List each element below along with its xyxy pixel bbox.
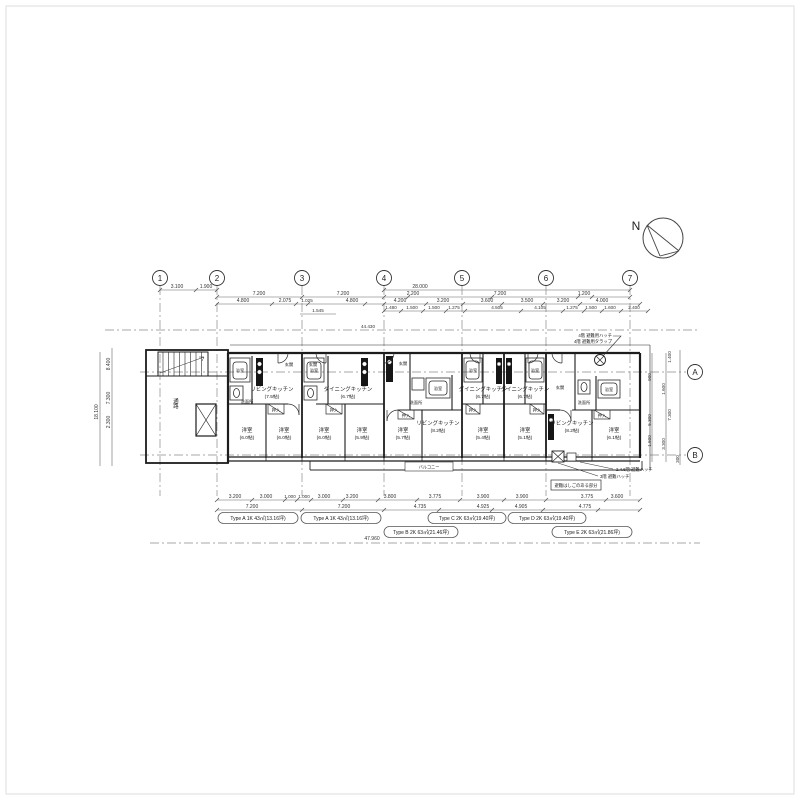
corridor-label: 通路: [172, 397, 179, 410]
room-name: 洋室: [242, 426, 253, 434]
closet-label: 押入: [330, 407, 339, 414]
type-label-a2: Type A 1K 43㎡(13.16坪): [313, 515, 369, 522]
grid-bubble-5: 5: [460, 274, 465, 283]
dim-label: 1.000: [284, 494, 296, 499]
dim-label: 1.600: [604, 305, 616, 310]
room-name: リビングキッチン: [416, 419, 459, 427]
note-hatch-top-1: 4階 避難用ハッチ: [578, 332, 612, 339]
grid-bubble-3: 3: [300, 274, 305, 283]
stair-annex: 通路: [146, 350, 228, 463]
dim-label: 3.000: [318, 494, 331, 500]
grid-bubble-B: B: [692, 451, 697, 460]
dim-label: 2.200: [407, 291, 420, 297]
dim-label: 4.800: [346, 298, 359, 304]
grid-bubble-4: 4: [382, 274, 387, 283]
dim-label: 3.775: [429, 494, 442, 500]
room-name: 洋室: [398, 426, 409, 434]
closets: [268, 404, 610, 419]
dim-label: 3.900: [477, 494, 490, 500]
floor-plan-svg: N 1 2 3 4 5 6 7 A B: [0, 0, 800, 800]
dim-label: 1.275: [448, 305, 460, 310]
dim-label: 3.200: [229, 494, 242, 500]
dim-label: 4.800: [237, 298, 250, 304]
dim-label: 7.300: [106, 392, 112, 405]
bath-label: 浴室: [469, 367, 477, 374]
room-size: (5.1帖): [518, 434, 533, 441]
dim-label: 3.200: [346, 494, 359, 500]
note-hatch-b2: 3階 避難ハッチ: [600, 473, 629, 480]
room-name: 洋室: [319, 426, 330, 434]
level-label: 44.430: [361, 324, 375, 329]
staircase: [158, 352, 208, 376]
dim-label: 28.000: [412, 284, 428, 290]
dim-label: 3.300: [661, 438, 666, 450]
dimensions-right: 1.400 900 1.600 5.300 7.300 1.500 3.300 …: [647, 350, 680, 465]
north-label: N: [632, 219, 641, 233]
dim-label: 1.000: [298, 494, 310, 499]
sheet-border: [6, 6, 794, 794]
room-name: ダイニングキッチン: [324, 385, 373, 393]
entrance-label: 玄関: [399, 360, 407, 367]
dim-label: 3.800: [384, 494, 397, 500]
closet-label: 押入: [469, 407, 478, 414]
dimensions-top: 3.100 1.900 28.000 7.200 7.200 2.200 7.2…: [105, 284, 700, 330]
type-capsules: Type A 1K 43㎡(13.16坪) Type A 1K 43㎡(13.1…: [218, 513, 632, 538]
type-label-c: Type C 2K 63㎡(19.40坪): [439, 515, 495, 522]
washroom-label: 洗面所: [241, 398, 254, 405]
dim-label: 1.275: [566, 305, 578, 310]
drawing-sheet: N 1 2 3 4 5 6 7 A B: [0, 0, 800, 800]
entrance-label: 玄関: [309, 361, 317, 368]
dim-label: 3.000: [260, 494, 273, 500]
dim-label: 1.900: [200, 284, 213, 290]
dim-label: 4.905: [515, 504, 528, 510]
dim-label: 7.200: [337, 291, 350, 297]
dim-label: 7.200: [338, 504, 351, 510]
dim-label: 4.200: [394, 298, 407, 304]
dim-label: 1.500: [406, 305, 418, 310]
dim-label: 3.200: [557, 298, 570, 304]
dim-label: 2.300: [106, 416, 112, 429]
dim-label: 1.200: [578, 291, 591, 297]
dimensions-left: 8.400 7.300 2.300 18.100: [94, 348, 112, 466]
washroom-label: 洗面所: [578, 399, 591, 406]
room-size: (6.0帖): [317, 434, 332, 441]
dim-label: 1.400: [667, 351, 672, 363]
grid-bubble-6: 6: [544, 274, 549, 283]
dim-label: 4.505: [491, 305, 503, 310]
room-size: (7.5帖): [265, 393, 280, 400]
north-compass: N: [632, 218, 683, 258]
room-size: (6.0帖): [277, 434, 292, 441]
dim-label: 7.200: [494, 291, 507, 297]
dim-label: 1.500: [647, 435, 652, 447]
closet-label: 押入: [598, 412, 607, 419]
dim-label: 1.500: [585, 305, 597, 310]
grid-bubble-1: 1: [158, 274, 163, 283]
dim-label: 8.400: [106, 358, 112, 371]
dim-label: 7.200: [253, 291, 266, 297]
dim-label: 3.500: [521, 298, 534, 304]
dim-label: 1.500: [428, 305, 440, 310]
room-size: (6.1帖): [607, 434, 622, 441]
note-hatch-top-2: 4階 避難用タラップ: [574, 338, 613, 345]
room-size: (6.0帖): [240, 434, 255, 441]
closet-label: 押入: [402, 412, 411, 419]
dim-label: 4.735: [414, 504, 427, 510]
room-name: リビングキッチン: [250, 385, 293, 393]
dim-label: 900: [647, 373, 652, 381]
dim-label: 3.600: [611, 494, 624, 500]
entrance-label: 玄関: [285, 361, 293, 368]
room-name: 洋室: [279, 426, 290, 434]
grid-rows: A B: [140, 365, 703, 463]
room-size: (8.2帖): [565, 427, 580, 434]
room-size: (6.7帖): [476, 393, 491, 400]
dim-label: 300: [675, 455, 680, 463]
dim-label: 2.075: [279, 298, 292, 304]
room-size: (5.4帖): [476, 434, 491, 441]
dim-label: 1.600: [661, 383, 666, 395]
grid-bubble-A: A: [692, 368, 698, 377]
dim-label: 1.480: [385, 305, 397, 310]
room-size: (6.7帖): [341, 393, 356, 400]
balcony-label: バルコニー: [419, 464, 440, 469]
type-label-a1: Type A 1K 43㎡(13.16坪): [230, 515, 286, 522]
type-label-b: Type B 2K 63㎡(21.46坪): [393, 529, 449, 536]
room-name: 洋室: [609, 426, 620, 434]
entrance-label: 玄関: [556, 384, 564, 391]
dim-label: 7.200: [246, 504, 259, 510]
room-name: 洋室: [478, 426, 489, 434]
dim-label: 18.100: [94, 404, 100, 420]
dim-label: 3.200: [437, 298, 450, 304]
closet-label: 押入: [533, 407, 542, 414]
room-name: リビングキッチン: [550, 419, 593, 427]
room-name: 洋室: [520, 426, 531, 434]
total-width-label: 47.960: [364, 536, 380, 542]
grid-bubble-7: 7: [628, 274, 633, 283]
room-name: 洋室: [357, 426, 368, 434]
type-label-e: Type E 2K 63㎡(21.86坪): [564, 529, 620, 536]
dim-label: 2.400: [628, 305, 640, 310]
interior-walls: [228, 353, 640, 458]
bath-label: 浴室: [310, 367, 318, 374]
dim-label: 4.925: [477, 504, 490, 510]
escape-hatches: [552, 355, 606, 463]
room-size: (5.9帖): [355, 434, 370, 441]
dim-label: 3.100: [171, 284, 184, 290]
note-hatch-box: 避難はしごのある部分: [555, 482, 599, 489]
dim-label: 4.000: [596, 298, 609, 304]
dim-label: 7.300: [667, 409, 672, 421]
bath-label: 浴室: [434, 385, 442, 392]
room-size: (6.7帖): [518, 393, 533, 400]
note-hatch-b1: 2.4.6階 避難ハッチ: [616, 466, 653, 473]
dim-label: 5.300: [647, 414, 652, 426]
bath-label: 浴室: [605, 386, 613, 393]
dim-label: 3.900: [516, 494, 529, 500]
closet-label: 押入: [272, 407, 281, 414]
room-size: (8.2帖): [431, 427, 446, 434]
dim-label: 1.025: [301, 298, 313, 303]
bath-label: 浴室: [531, 367, 539, 374]
room-size: (5.7帖): [396, 434, 411, 441]
dim-label: 3.775: [581, 494, 594, 500]
room-name: ダイニングキッチン: [501, 385, 550, 393]
dim-label: 4.105: [534, 305, 546, 310]
type-label-d: Type D 2K 63㎡(19.40坪): [519, 515, 575, 522]
dim-label: 1.545: [312, 308, 324, 313]
washroom-label: 洗面所: [410, 399, 423, 406]
bath-label: 浴室: [236, 367, 244, 374]
dim-label: 4.775: [579, 504, 592, 510]
grid-bubble-2: 2: [215, 274, 220, 283]
dim-label: 3.600: [481, 298, 494, 304]
